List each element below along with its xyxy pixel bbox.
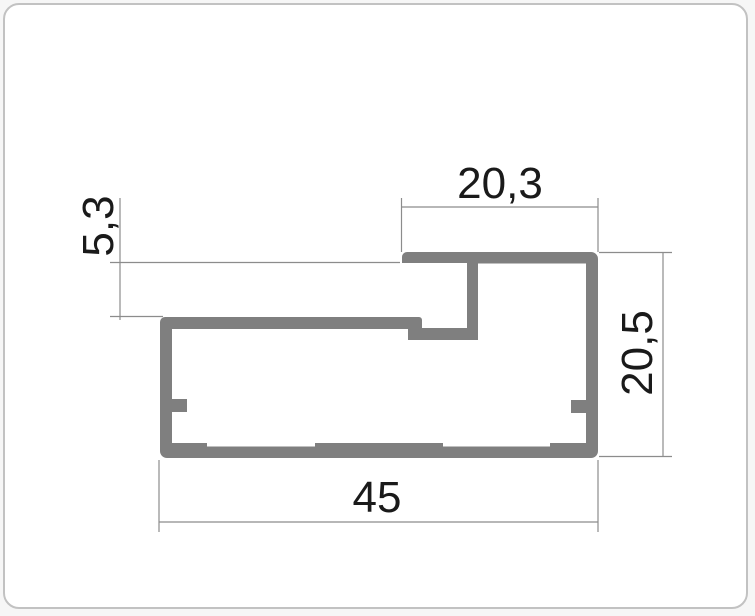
technical-drawing: 20,3 5,3 20,5 45 (0, 0, 755, 616)
profile-outline (160, 252, 598, 458)
right-wall-tab (571, 400, 586, 413)
left-wall-tab (172, 399, 187, 412)
groove-left (207, 443, 315, 447)
dim-label-overall-height: 20,5 (613, 310, 662, 396)
dim-label-slot-height: 5,3 (74, 195, 123, 256)
dim-label-overall-width: 45 (353, 473, 402, 522)
dim-label-top-width: 20,3 (457, 159, 543, 208)
groove-right (443, 443, 550, 447)
profile-shape (160, 252, 598, 458)
